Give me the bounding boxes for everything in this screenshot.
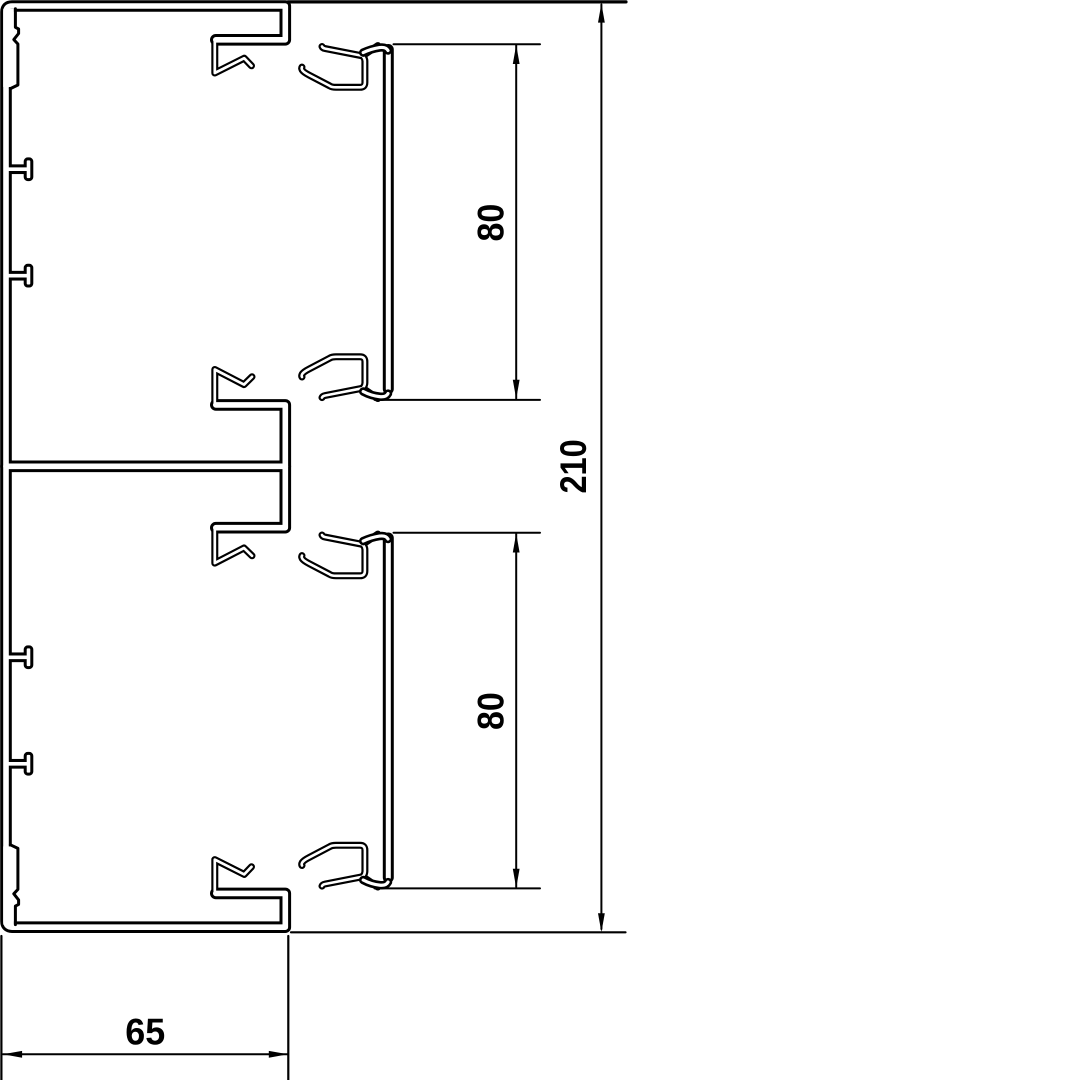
svg-text:210: 210 [553,439,594,493]
svg-text:80: 80 [470,204,512,242]
svg-text:65: 65 [125,1011,165,1053]
svg-text:80: 80 [470,692,512,730]
